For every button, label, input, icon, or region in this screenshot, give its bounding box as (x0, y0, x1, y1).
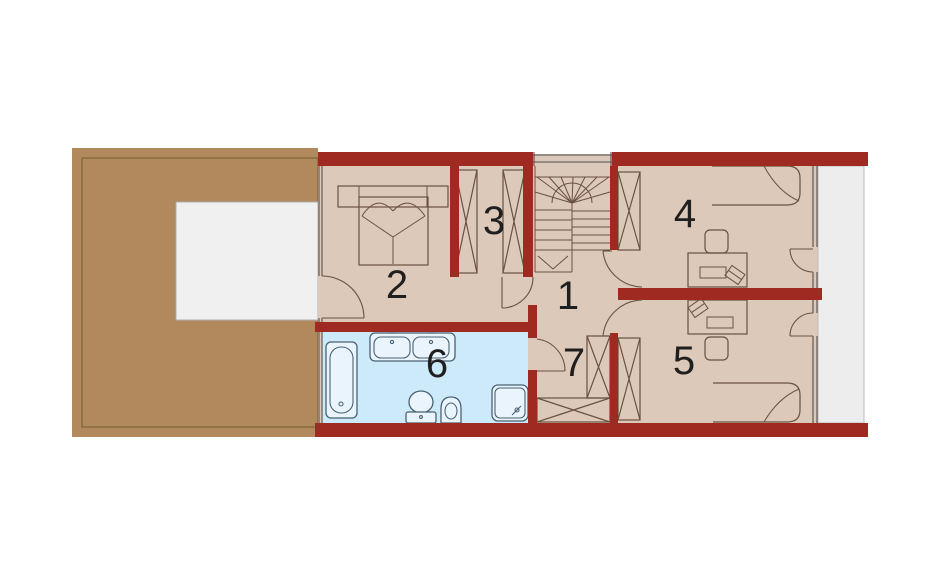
room-label-2: 2 (386, 263, 408, 307)
wall-stairs-room4 (610, 166, 618, 250)
shower (492, 385, 528, 421)
balcony (818, 166, 864, 423)
wall-room3-stairs (523, 166, 533, 277)
wall-top-left (318, 152, 533, 166)
room-label-6: 6 (426, 342, 448, 386)
bathtub (326, 342, 357, 418)
room-label-5: 5 (673, 339, 695, 383)
wall-bathroom-right-upper (528, 305, 537, 338)
room-label-3: 3 (483, 199, 505, 243)
bidet (441, 397, 461, 423)
floor-plan-drawing: 1 2 3 4 5 6 7 (0, 0, 940, 587)
room-label-1: 1 (557, 274, 579, 318)
wall-bathroom-top (315, 322, 537, 332)
wall-room2-room3 (450, 166, 459, 277)
wall-top-right (612, 152, 868, 166)
room-label-4: 4 (674, 192, 696, 236)
wall-bathroom-right-lower (528, 370, 537, 423)
wall-room4-room5 (618, 288, 822, 300)
wall-room7-room5 (610, 333, 618, 423)
floor-plan-page: 1 2 3 4 5 6 7 (0, 0, 940, 587)
skylight-opening (176, 202, 318, 320)
toilet (406, 391, 436, 423)
room-label-7: 7 (563, 341, 585, 385)
wall-bottom (315, 423, 868, 437)
